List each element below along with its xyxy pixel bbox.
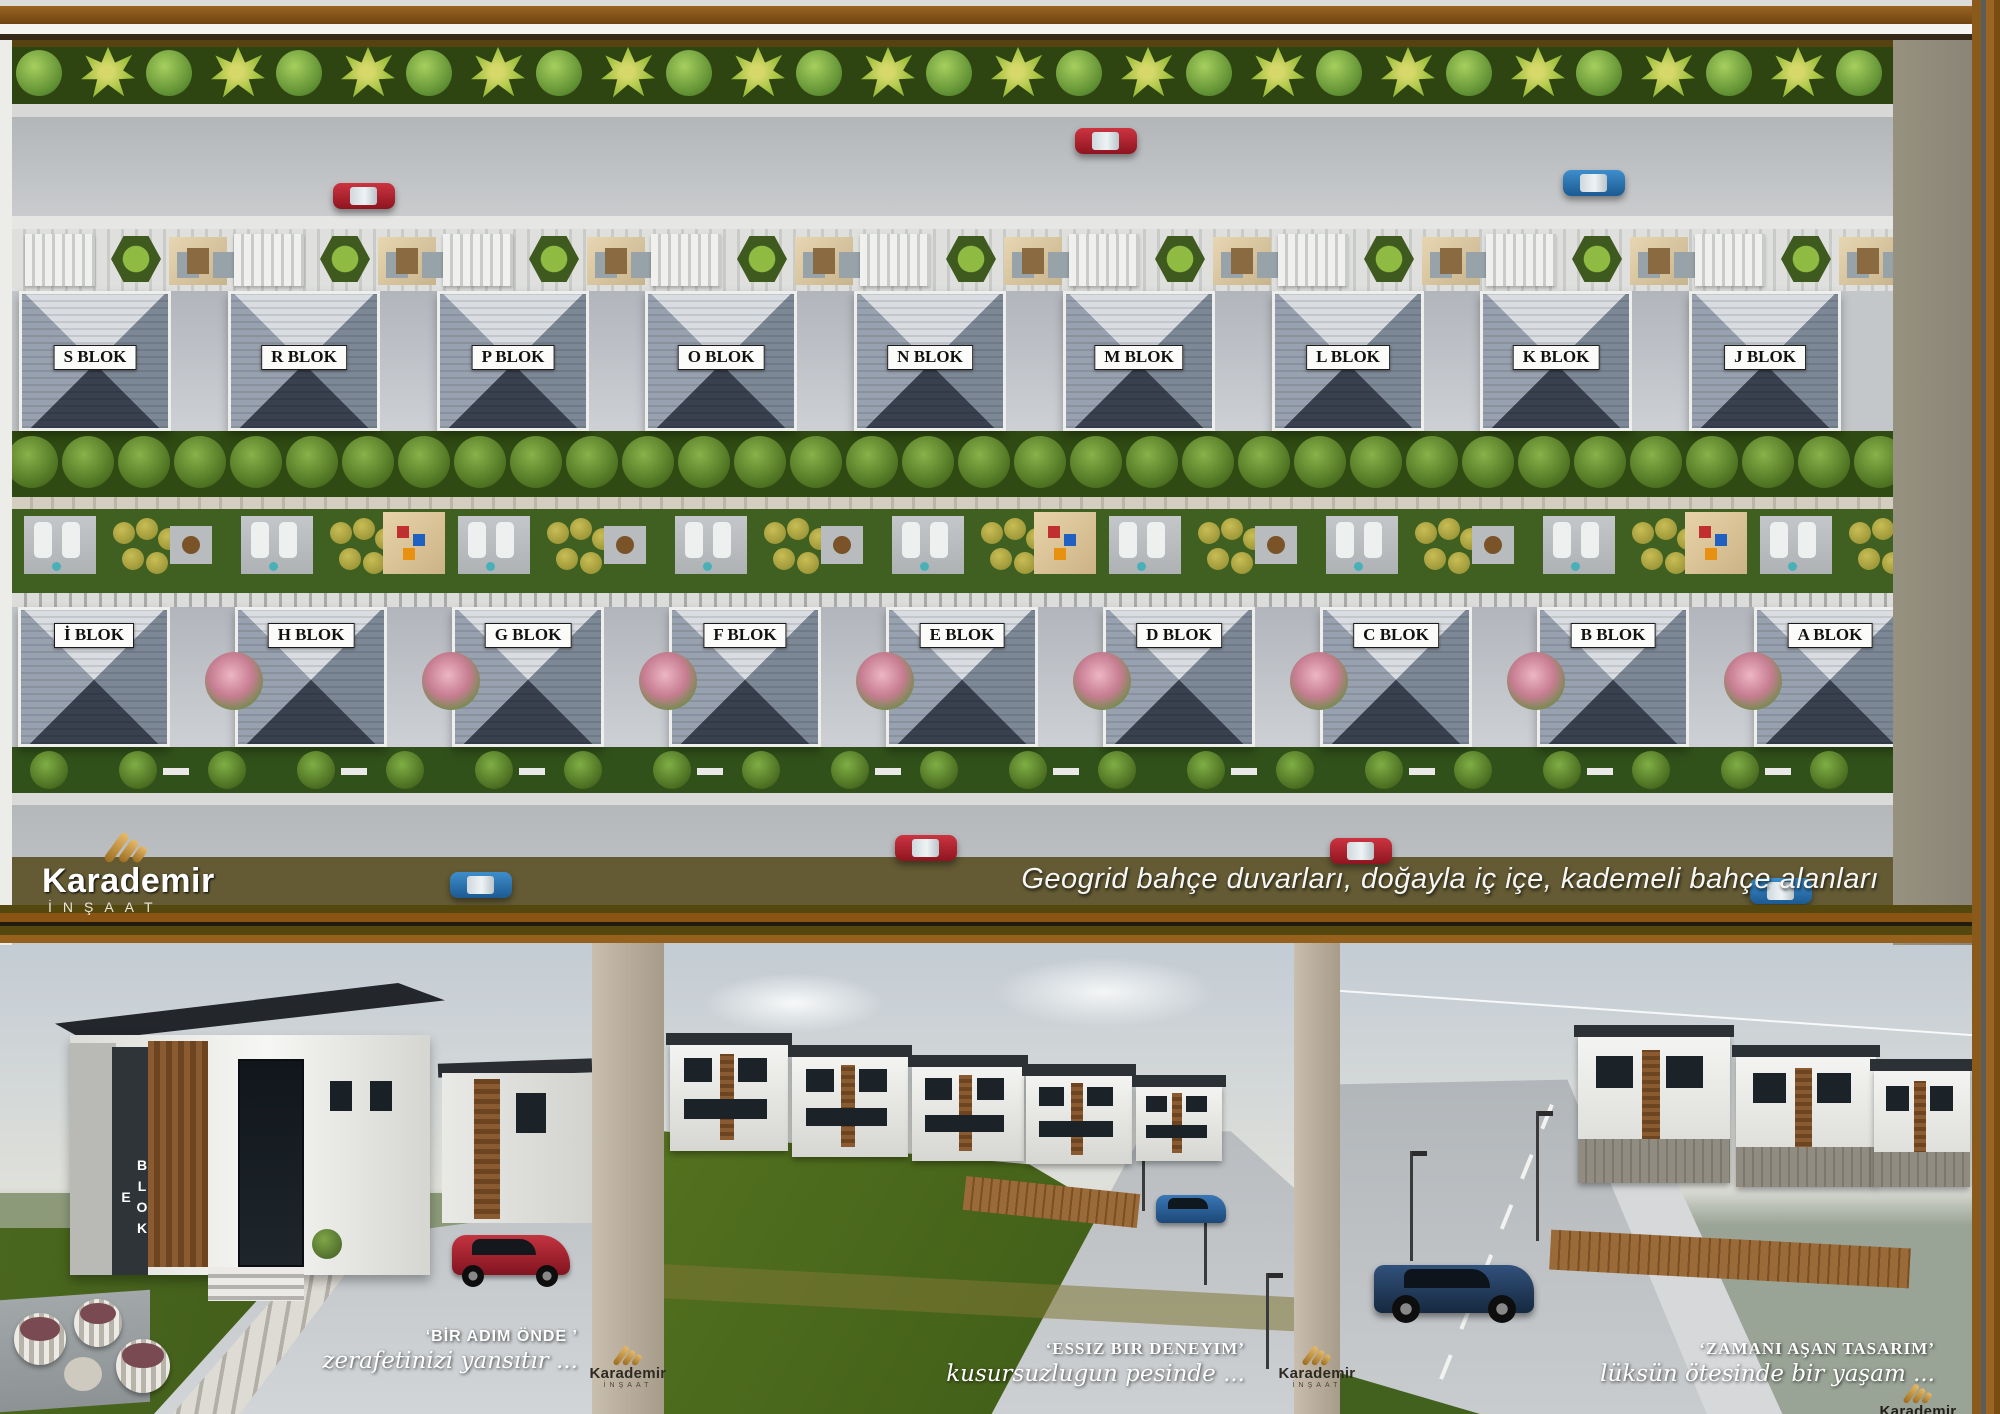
- block-label: D BLOK: [1136, 623, 1222, 648]
- divider-stripe: [0, 913, 1972, 922]
- hillside-villa: [670, 1043, 788, 1151]
- yellow-shrub: [990, 548, 1012, 570]
- villa-roof: [1132, 1075, 1226, 1087]
- villa-wood-accent: [841, 1065, 855, 1147]
- pergola: [234, 234, 304, 286]
- garden-bush: [1630, 436, 1682, 488]
- car-windshield: [350, 187, 377, 205]
- block-label: O BLOK: [678, 345, 765, 370]
- garden-table: [1267, 536, 1285, 554]
- caption-title: ‘BİR ADIM ÖNDE ’: [322, 1328, 578, 1346]
- divider-stripe: [0, 926, 1972, 935]
- flower-tree: [1073, 652, 1131, 710]
- garden-bush: [566, 436, 618, 488]
- yellow-shrub: [1858, 548, 1880, 570]
- lounge-chair: [713, 522, 731, 558]
- round-bush: [146, 50, 192, 96]
- hillside-villa: [1026, 1074, 1132, 1164]
- garden-bush: [1574, 436, 1626, 488]
- yellow-shrub: [339, 548, 361, 570]
- garden-table: [833, 536, 851, 554]
- yellow-shrub: [1207, 548, 1229, 570]
- driveway: [1632, 291, 1689, 431]
- garden-bush: [510, 436, 562, 488]
- patio-furniture: [813, 248, 835, 274]
- fence-piece: [163, 768, 189, 775]
- round-bush: [1836, 50, 1882, 96]
- villa-window: [1146, 1096, 1167, 1113]
- garden-bush: [1238, 436, 1290, 488]
- pergola: [25, 234, 95, 286]
- lounge-chair: [685, 522, 703, 558]
- pool-dot: [703, 562, 712, 571]
- front-bush: [920, 751, 958, 789]
- garden-bush: [1462, 436, 1514, 488]
- garden-bush: [230, 436, 282, 488]
- road-top: [12, 117, 1893, 216]
- flower-tree: [1724, 652, 1782, 710]
- street-lamp: [1536, 1111, 1539, 1241]
- villa-block: R BLOK: [228, 291, 380, 431]
- villa-block: P BLOK: [437, 291, 589, 431]
- garden-bush: [1686, 436, 1738, 488]
- pergola: [1278, 234, 1348, 286]
- cloud: [704, 973, 884, 1033]
- villa-window: [1930, 1086, 1953, 1112]
- garden-bush: [286, 436, 338, 488]
- wicker-stool: [74, 1299, 122, 1347]
- garden-bush: [734, 436, 786, 488]
- patio-furniture: [1648, 248, 1670, 274]
- front-bush: [564, 751, 602, 789]
- brand-name: Karademir: [42, 862, 215, 901]
- villa-roof: [908, 1055, 1028, 1067]
- round-bush: [1446, 50, 1492, 96]
- garden-bush: [398, 436, 450, 488]
- driveway: [1215, 291, 1272, 431]
- car-windshield: [1580, 174, 1607, 192]
- villa-wood-accent: [959, 1075, 972, 1152]
- round-bush: [1316, 50, 1362, 96]
- brochure-page: S BLOKR BLOKP BLOKO BLOKN BLOKM BLOKL BL…: [0, 0, 2000, 1414]
- driveway: [1424, 291, 1481, 431]
- window-small: [330, 1081, 352, 1111]
- car-wheel: [462, 1265, 484, 1287]
- brand-logo: Karademir İNŞAAT: [42, 828, 215, 915]
- villa-window: [1596, 1056, 1632, 1089]
- round-bush: [926, 50, 972, 96]
- block-label: N BLOK: [887, 345, 973, 370]
- tagline: Geogrid bahçe duvarları, doğayla iç içe,…: [1000, 863, 1900, 896]
- yellow-shrub: [1632, 522, 1654, 544]
- patio-furniture: [1440, 248, 1462, 274]
- villa-block: K BLOK: [1480, 291, 1632, 431]
- patio-furniture: [1231, 248, 1253, 274]
- lounge-chair: [1798, 522, 1816, 558]
- hillside-villa: [1136, 1085, 1222, 1161]
- garden-bush: [958, 436, 1010, 488]
- block-sign-vertical: E BLOK: [118, 1139, 142, 1259]
- lounge-chair: [1770, 522, 1788, 558]
- caption-title: ‘ZAMANI AŞAN TASARIM’: [1600, 1339, 1935, 1359]
- frame-edge: [1972, 0, 2000, 1414]
- yellow-shrub: [787, 518, 809, 540]
- villa-stone-base: [1736, 1147, 1876, 1187]
- patio-table: [64, 1357, 102, 1391]
- block-label: S BLOK: [54, 345, 137, 370]
- villa-window: [684, 1099, 767, 1118]
- lounge-chair: [251, 522, 269, 558]
- yellow-shrub: [122, 548, 144, 570]
- block-label: F BLOK: [703, 623, 786, 648]
- front-bush: [208, 751, 246, 789]
- yellow-shrub: [556, 548, 578, 570]
- villa-window: [1039, 1087, 1064, 1107]
- yellow-shrub: [547, 522, 569, 544]
- lounge-chair: [1336, 522, 1354, 558]
- street-lamp: [1410, 1151, 1413, 1261]
- panel-caption: ‘ZAMANI AŞAN TASARIM’ lüksün ötesinde bi…: [1600, 1339, 1935, 1387]
- front-bush: [1009, 751, 1047, 789]
- villa-window: [977, 1078, 1004, 1099]
- garden-bush: [902, 436, 954, 488]
- villa-block: L BLOK: [1272, 291, 1424, 431]
- brand-logo: Karademir İNŞAAT: [1262, 1343, 1372, 1389]
- villa-roof: [666, 1033, 792, 1045]
- divider-stripe: [0, 905, 1972, 913]
- flower-tree: [639, 652, 697, 710]
- flower-tree: [1507, 652, 1565, 710]
- fence-piece: [1231, 768, 1257, 775]
- front-bush: [1365, 751, 1403, 789]
- panel-divider: Karademir İNŞAAT: [1294, 943, 1340, 1414]
- frame-edge: [0, 6, 2000, 24]
- panel-divider: Karademir İNŞAAT: [592, 943, 664, 1414]
- round-bush: [666, 50, 712, 96]
- panel-caption: ‘BİR ADIM ÖNDE ’ zerafetinizi yansıtır .…: [322, 1328, 578, 1374]
- lounge-chair: [496, 522, 514, 558]
- pergola: [860, 234, 930, 286]
- front-bush: [30, 751, 68, 789]
- round-bush: [536, 50, 582, 96]
- pergola: [443, 234, 513, 286]
- pool-dot: [1571, 562, 1580, 571]
- yellow-shrub: [136, 518, 158, 540]
- patio-furniture: [605, 248, 627, 274]
- car-windshield: [912, 839, 939, 857]
- garden-bush: [1182, 436, 1234, 488]
- yellow-shrub: [1872, 518, 1893, 540]
- blue-car-windows: [1168, 1198, 1208, 1209]
- yellow-shrub: [1665, 552, 1687, 574]
- render-panel-villa: E BLOK ‘BİR ADIM ÖNDE ’ zerafetinizi yan…: [0, 943, 592, 1414]
- driveway: [380, 291, 437, 431]
- lounge-chair: [279, 522, 297, 558]
- fence-piece: [341, 768, 367, 775]
- villa-stone-base: [1578, 1139, 1730, 1183]
- pool-dot: [1788, 562, 1797, 571]
- garden-bush: [1070, 436, 1122, 488]
- garden-bush: [118, 436, 170, 488]
- caption-subtitle: kusursuzlugun pesinde ...: [946, 1361, 1245, 1387]
- garden-bush: [1350, 436, 1402, 488]
- round-bush: [1706, 50, 1752, 96]
- render-panel-street: ‘ESSIZ BIR DENEYIM’ kusursuzlugun pesind…: [664, 943, 1294, 1414]
- villa-window: [738, 1058, 766, 1082]
- villa-roof: [1870, 1059, 1972, 1071]
- lounge-chair: [1364, 522, 1382, 558]
- block-label: A BLOK: [1788, 623, 1873, 648]
- car-top-view: [450, 872, 512, 898]
- pool-dot: [486, 562, 495, 571]
- patio-furniture: [187, 248, 209, 274]
- front-bush: [1543, 751, 1581, 789]
- villa-roof: [1022, 1064, 1136, 1076]
- garden-bush: [174, 436, 226, 488]
- flower-tree: [422, 652, 480, 710]
- sidewalk: [12, 104, 1893, 117]
- front-bush: [386, 751, 424, 789]
- car-wheel: [1488, 1295, 1516, 1323]
- yellow-shrub: [1415, 522, 1437, 544]
- lounge-chair: [1147, 522, 1165, 558]
- garden-bush: [62, 436, 114, 488]
- neighbor-wood: [474, 1079, 500, 1219]
- car-top-view: [1075, 128, 1137, 154]
- yellow-shrub: [797, 552, 819, 574]
- pergola: [1069, 234, 1139, 286]
- round-bush: [1056, 50, 1102, 96]
- block-label: M BLOK: [1094, 345, 1183, 370]
- block-label: B BLOK: [1571, 623, 1656, 648]
- block-label: E BLOK: [920, 623, 1005, 648]
- villa-window: [1886, 1086, 1909, 1112]
- pool-dot: [52, 562, 61, 571]
- yellow-shrub: [1655, 518, 1677, 540]
- yellow-shrub: [570, 518, 592, 540]
- villa-window: [1753, 1073, 1787, 1102]
- garden-bush: [790, 436, 842, 488]
- yellow-shrub: [1448, 552, 1470, 574]
- yellow-shrub: [981, 522, 1003, 544]
- playground-sand: [383, 512, 445, 574]
- yellow-shrub: [1849, 522, 1871, 544]
- pergola: [1486, 234, 1556, 286]
- neighbor-window: [516, 1093, 546, 1133]
- front-bush: [1187, 751, 1225, 789]
- patio-furniture: [396, 248, 418, 274]
- car-wheel: [1392, 1295, 1420, 1323]
- villa-roof: [1732, 1045, 1880, 1057]
- front-bush: [1810, 751, 1848, 789]
- fence-piece: [1587, 768, 1613, 775]
- brand-name: Karademir: [1262, 1365, 1372, 1382]
- fence-piece: [875, 768, 901, 775]
- yellow-shrub: [363, 552, 385, 574]
- garden-bush: [454, 436, 506, 488]
- hillside-villa: [1736, 1055, 1876, 1187]
- brand-subtitle: İNŞAAT: [573, 1382, 683, 1389]
- garden-bush: [678, 436, 730, 488]
- yellow-shrub: [580, 552, 602, 574]
- villa-roof: [788, 1045, 912, 1057]
- garden-table: [1484, 536, 1502, 554]
- fence-piece: [697, 768, 723, 775]
- wood-cladding: [148, 1041, 208, 1267]
- yellow-shrub: [1231, 552, 1253, 574]
- block-label: G BLOK: [485, 623, 572, 648]
- block-label: K BLOK: [1513, 345, 1600, 370]
- villa-window: [1186, 1096, 1207, 1113]
- caption-title: ‘ESSIZ BIR DENEYIM’: [946, 1339, 1245, 1359]
- car-windows: [1404, 1269, 1490, 1288]
- block-label: H BLOK: [268, 623, 355, 648]
- villa-wood-accent: [1172, 1093, 1182, 1154]
- brand-logo: Karademir İNŞAAT: [573, 1343, 683, 1389]
- round-bush: [1576, 50, 1622, 96]
- potted-tree: [312, 1229, 342, 1259]
- yellow-shrub: [146, 552, 168, 574]
- hillside-villa: [1578, 1035, 1730, 1183]
- front-bush: [1721, 751, 1759, 789]
- entrance-steps: [208, 1267, 304, 1301]
- hillside-villa: [912, 1065, 1024, 1161]
- yellow-shrub: [330, 522, 352, 544]
- villa-block: N BLOK: [854, 291, 1006, 431]
- render-panel-street2: ‘ZAMANI AŞAN TASARIM’ lüksün ötesinde bi…: [1340, 943, 1972, 1414]
- round-bush: [796, 50, 842, 96]
- yellow-shrub: [773, 548, 795, 570]
- panel-caption: ‘ESSIZ BIR DENEYIM’ kusursuzlugun pesind…: [946, 1339, 1245, 1387]
- yellow-shrub: [1221, 518, 1243, 540]
- front-bush: [653, 751, 691, 789]
- driveway: [797, 291, 854, 431]
- garden-bush: [1742, 436, 1794, 488]
- front-bush: [1454, 751, 1492, 789]
- fence-piece: [1053, 768, 1079, 775]
- yellow-shrub: [1004, 518, 1026, 540]
- pool-dot: [1354, 562, 1363, 571]
- pergola: [1695, 234, 1765, 286]
- car-windshield: [1092, 132, 1119, 150]
- round-bush: [276, 50, 322, 96]
- round-bush: [1186, 50, 1232, 96]
- villa-wood-accent: [720, 1054, 734, 1140]
- car-top-view: [333, 183, 395, 209]
- garden-bush: [1014, 436, 1066, 488]
- window-small: [370, 1081, 392, 1111]
- caption-subtitle: lüksün ötesinde bir yaşam ...: [1600, 1361, 1935, 1387]
- villa-window: [1087, 1087, 1112, 1107]
- villa-stone-base: [1874, 1152, 1970, 1187]
- site-plan: S BLOKR BLOKP BLOKO BLOKN BLOKM BLOKL BL…: [12, 40, 1893, 943]
- play-equipment: [397, 526, 409, 538]
- villa-window: [1146, 1125, 1206, 1139]
- frame-edge: [1893, 40, 1972, 945]
- garden-table: [182, 536, 200, 554]
- car-windshield: [1347, 842, 1374, 860]
- red-car-windows: [472, 1239, 536, 1255]
- cloud: [994, 957, 1214, 1027]
- villa-window: [925, 1115, 1003, 1132]
- front-bush: [119, 751, 157, 789]
- brand-subtitle: İNŞAAT: [48, 899, 215, 915]
- front-bush: [1098, 751, 1136, 789]
- stone-path: [12, 497, 1893, 509]
- pergola: [651, 234, 721, 286]
- flower-tree: [1290, 652, 1348, 710]
- driveway: [1006, 291, 1063, 431]
- garden-bush: [1798, 436, 1850, 488]
- frame-edge: [0, 34, 2000, 40]
- block-label: C BLOK: [1353, 623, 1439, 648]
- lounge-chair: [62, 522, 80, 558]
- garden-bush: [846, 436, 898, 488]
- window-tall: [238, 1059, 304, 1267]
- fence-piece: [1409, 768, 1435, 775]
- frame-edge: [0, 24, 2000, 34]
- villa-block: J BLOK: [1689, 291, 1841, 431]
- villa-block: İ BLOK: [18, 607, 170, 747]
- yellow-shrub: [1014, 552, 1036, 574]
- pool-dot: [1137, 562, 1146, 571]
- patio-furniture: [1022, 248, 1044, 274]
- flower-tree: [205, 652, 263, 710]
- yellow-shrub: [353, 518, 375, 540]
- wicker-stool: [116, 1339, 170, 1393]
- garden-bush: [1406, 436, 1458, 488]
- hillside-villa: [1874, 1069, 1970, 1187]
- villa-window: [1039, 1121, 1113, 1137]
- front-bush: [297, 751, 335, 789]
- villa-window: [1666, 1056, 1702, 1089]
- car-top-view: [1330, 838, 1392, 864]
- block-label: P BLOK: [472, 345, 555, 370]
- car-wheel: [536, 1265, 558, 1287]
- frame-edge: [0, 40, 12, 945]
- front-bush: [475, 751, 513, 789]
- driveway: [589, 291, 646, 431]
- playground-sand: [1034, 512, 1096, 574]
- flower-tree: [856, 652, 914, 710]
- block-label: R BLOK: [261, 345, 347, 370]
- lounge-chair: [1553, 522, 1571, 558]
- sidewalk: [12, 793, 1893, 805]
- front-bush: [1632, 751, 1670, 789]
- fence-piece: [1765, 768, 1791, 775]
- brand-name: Karademir: [1858, 1403, 1972, 1414]
- play-equipment: [1699, 526, 1711, 538]
- play-equipment: [1048, 526, 1060, 538]
- villa-window: [806, 1108, 887, 1126]
- villa-window: [806, 1069, 834, 1091]
- front-bush: [831, 751, 869, 789]
- villa-wood-accent: [1071, 1083, 1084, 1155]
- yellow-shrub: [1438, 518, 1460, 540]
- villa-block: M BLOK: [1063, 291, 1215, 431]
- garden-bush: [622, 436, 674, 488]
- driveway: [171, 291, 228, 431]
- block-label: İ BLOK: [54, 623, 134, 648]
- brand-name: Karademir: [573, 1365, 683, 1382]
- chevron-logo-icon: [1302, 1343, 1332, 1365]
- garden-bush: [1126, 436, 1178, 488]
- lounge-chair: [1119, 522, 1137, 558]
- villa-window: [925, 1078, 952, 1099]
- garden-bush: [1518, 436, 1570, 488]
- lounge-chair: [1581, 522, 1599, 558]
- patio-furniture: [1857, 248, 1879, 274]
